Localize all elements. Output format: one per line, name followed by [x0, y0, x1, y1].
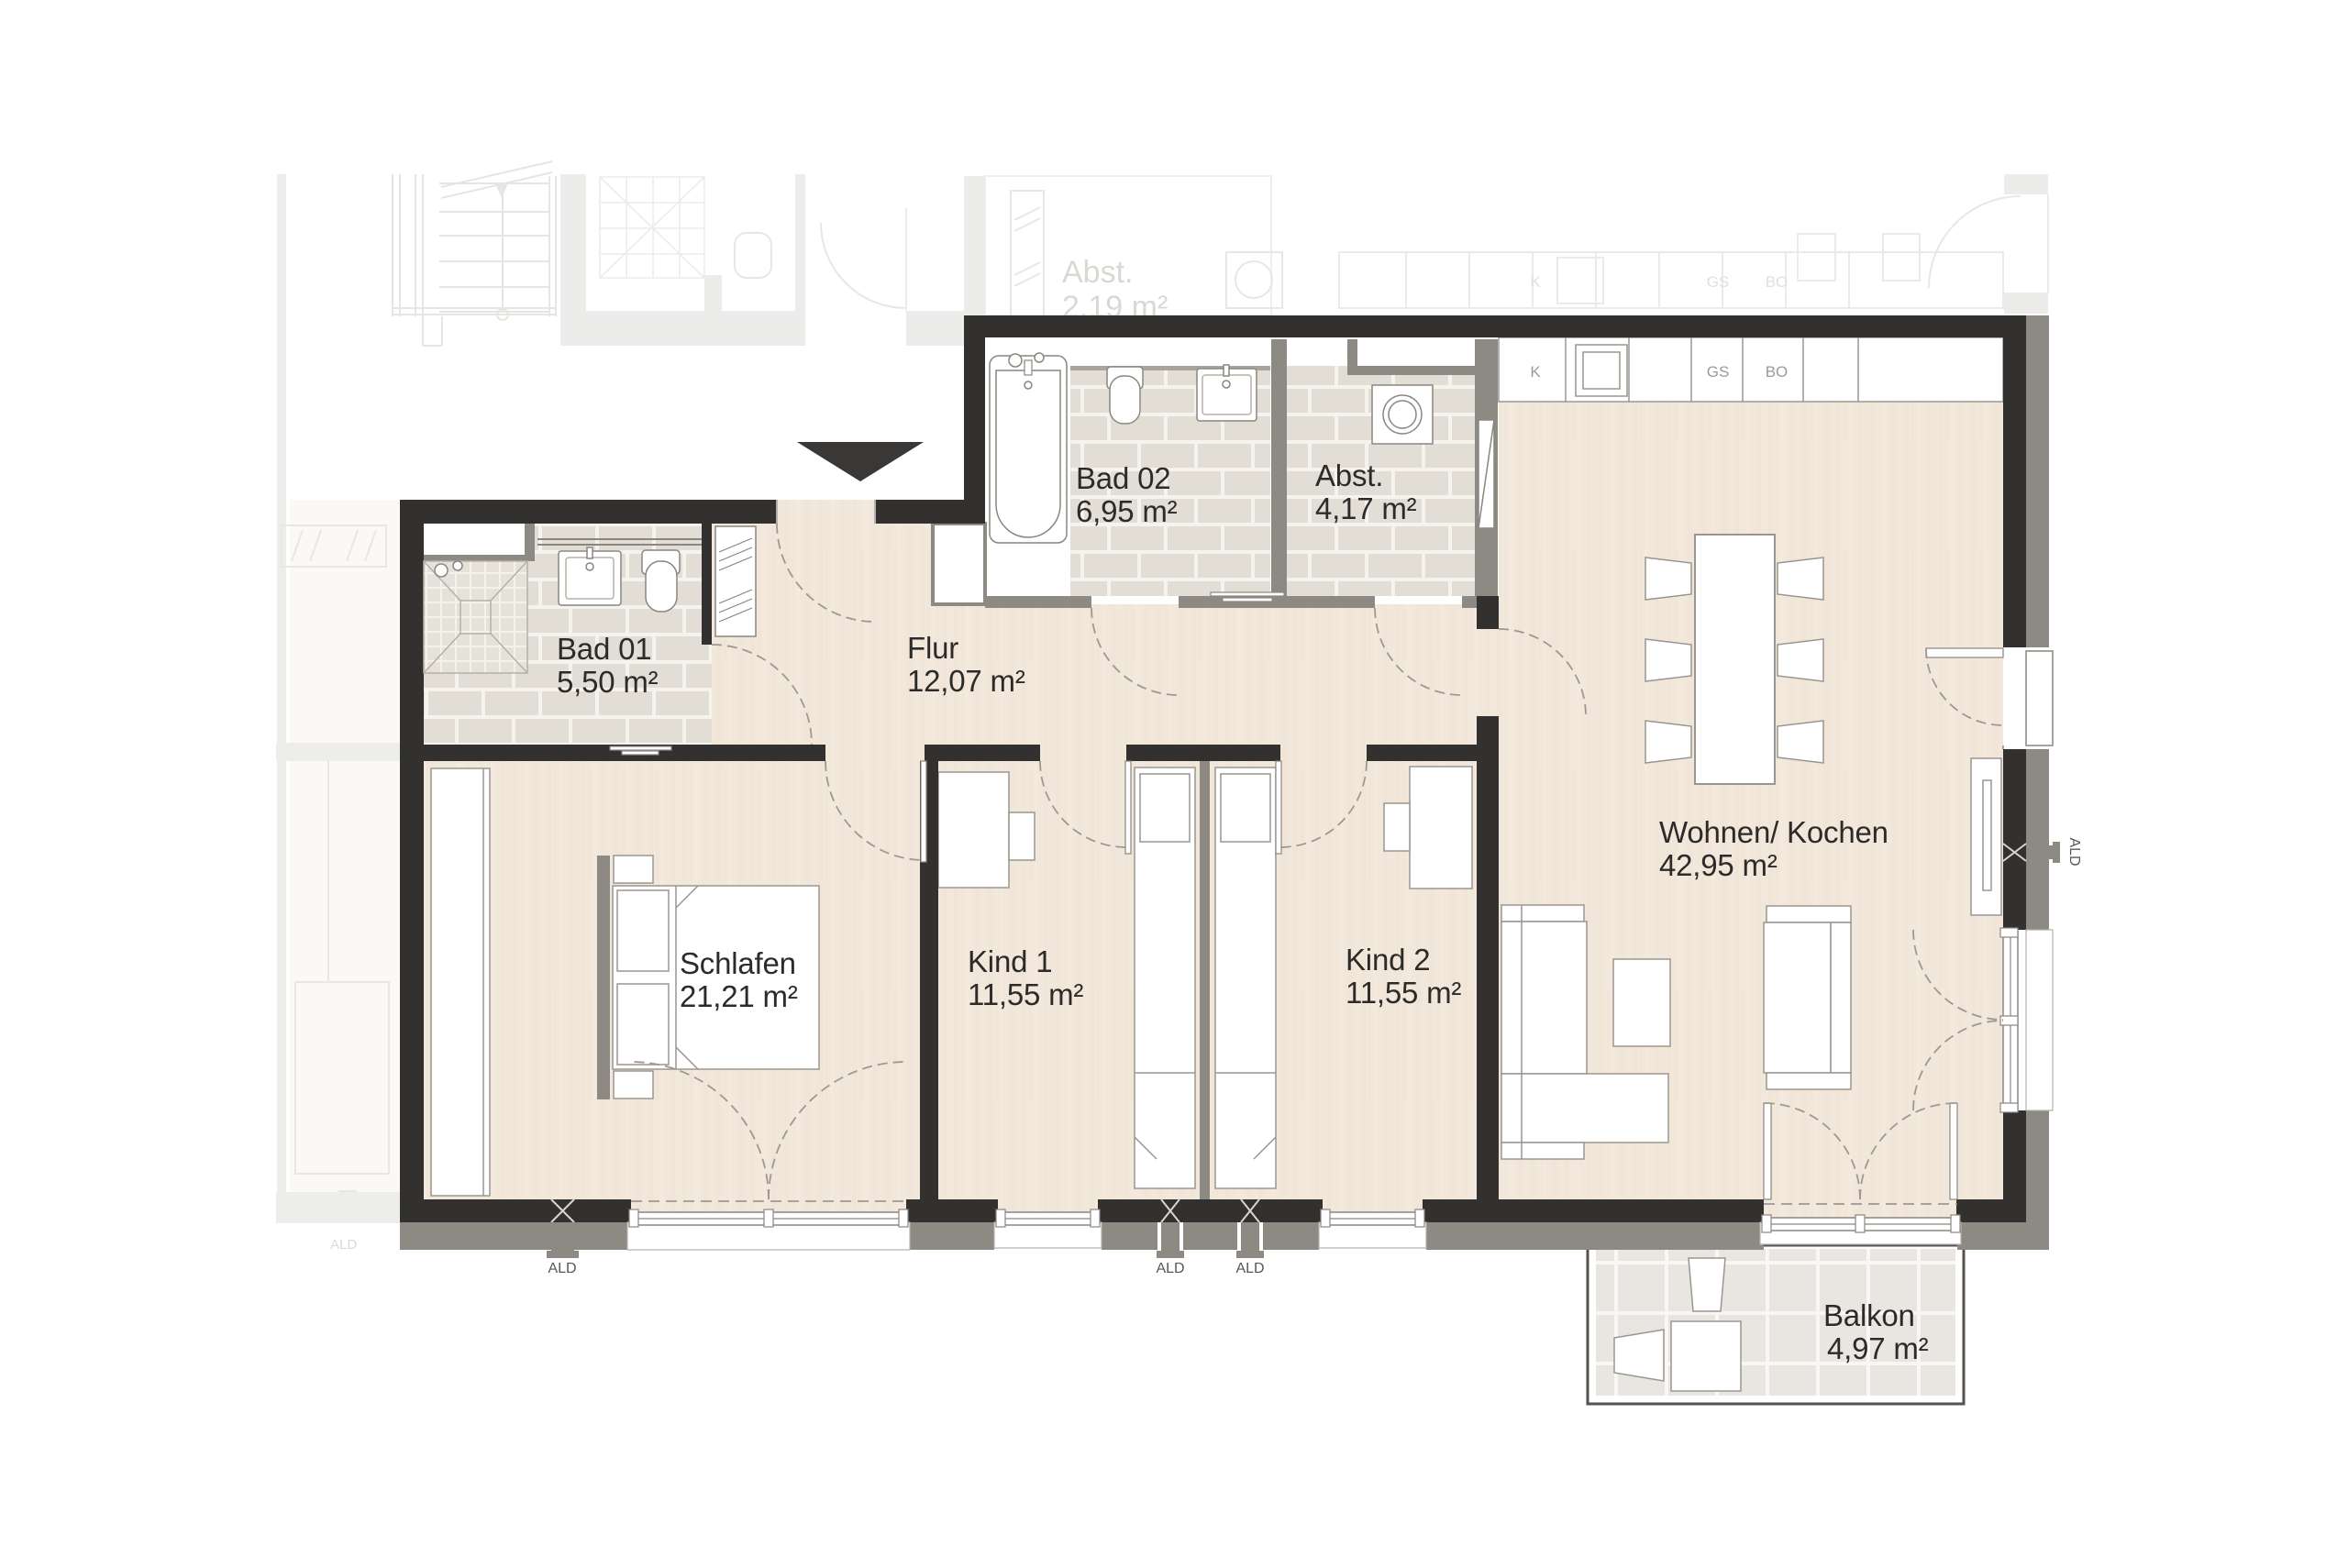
svg-text:GS: GS — [1707, 273, 1730, 291]
svg-text:42,95 m²: 42,95 m² — [1659, 848, 1778, 882]
svg-text:ALD: ALD — [1235, 1261, 1264, 1276]
svg-text:Bad 02: Bad 02 — [1076, 461, 1170, 495]
svg-text:Schlafen: Schlafen — [680, 946, 796, 980]
svg-text:11,55 m²: 11,55 m² — [968, 977, 1083, 1011]
svg-text:ALD: ALD — [330, 1237, 357, 1253]
svg-text:12,07 m²: 12,07 m² — [907, 664, 1025, 698]
svg-text:K: K — [1530, 273, 1541, 291]
svg-text:11,55 m²: 11,55 m² — [1346, 976, 1461, 1010]
svg-text:Kind 1: Kind 1 — [968, 944, 1052, 978]
svg-text:Abst.: Abst. — [1062, 255, 1133, 290]
svg-text:K: K — [1530, 363, 1541, 381]
svg-text:Abst.: Abst. — [1315, 458, 1383, 492]
svg-text:21,21 m²: 21,21 m² — [680, 979, 798, 1013]
svg-text:BO: BO — [1766, 273, 1789, 291]
svg-text:GS: GS — [1707, 363, 1730, 381]
svg-text:ALD: ALD — [2066, 837, 2082, 866]
svg-text:Flur: Flur — [907, 631, 958, 665]
svg-text:Wohnen/ Kochen: Wohnen/ Kochen — [1659, 815, 1888, 849]
svg-text:Kind 2: Kind 2 — [1346, 943, 1430, 977]
svg-text:Balkon: Balkon — [1823, 1298, 1915, 1332]
svg-text:6,95 m²: 6,95 m² — [1076, 494, 1178, 528]
svg-text:4,97 m²: 4,97 m² — [1827, 1331, 1929, 1365]
svg-text:BO: BO — [1766, 363, 1789, 381]
svg-text:5,50 m²: 5,50 m² — [557, 665, 659, 699]
svg-text:ALD: ALD — [1156, 1261, 1184, 1276]
svg-text:4,17 m²: 4,17 m² — [1315, 491, 1417, 525]
svg-text:ALD: ALD — [548, 1261, 576, 1276]
svg-text:Bad 01: Bad 01 — [557, 632, 651, 666]
